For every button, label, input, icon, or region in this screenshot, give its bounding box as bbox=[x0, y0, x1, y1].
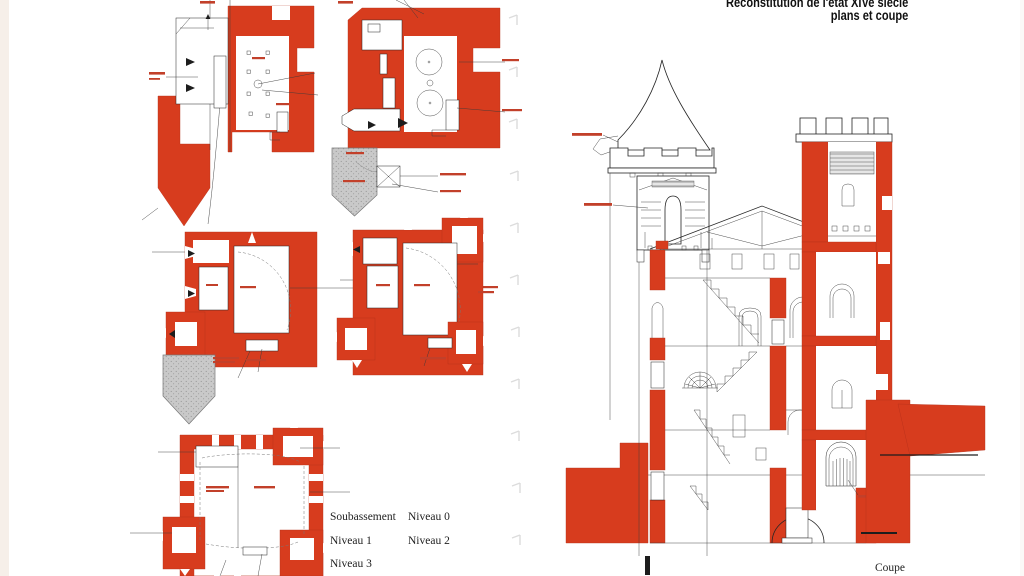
legend-niveau-1: Niveau 1 bbox=[330, 535, 372, 547]
legend-niveau-2: Niveau 2 bbox=[408, 535, 450, 547]
legend-niveau-0: Niveau 0 bbox=[408, 511, 450, 523]
plan-niveau-2 bbox=[329, 211, 494, 375]
plan-niveau-0 bbox=[332, 0, 522, 216]
coupe-drawing bbox=[566, 60, 985, 575]
figure-title-line2: plans et coupe bbox=[726, 9, 908, 22]
section-caption: Coupe bbox=[875, 562, 905, 574]
legend-soubassement: Soubassement bbox=[330, 511, 396, 523]
plan-niveau-3 bbox=[130, 420, 350, 576]
architectural-drawings bbox=[0, 0, 1024, 576]
figure-title: Reconstitution de l'état XIVe siècle pla… bbox=[726, 0, 908, 22]
binding-marks bbox=[509, 15, 520, 545]
scanned-document-page: Reconstitution de l'état XIVe siècle pla… bbox=[0, 0, 1024, 576]
legend-niveau-3: Niveau 3 bbox=[330, 558, 372, 570]
fan-vault bbox=[682, 372, 718, 388]
plan-soubassement bbox=[142, 0, 318, 226]
